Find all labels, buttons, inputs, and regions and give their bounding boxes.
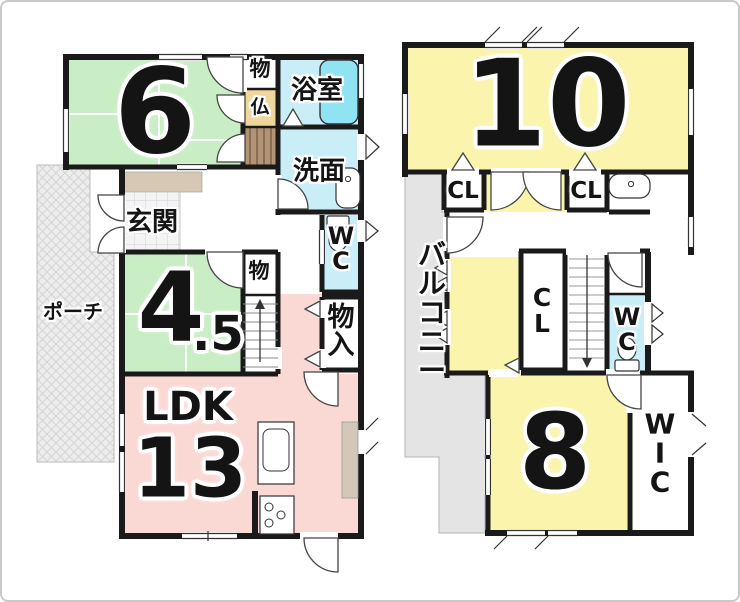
butsudan-label: 仏: [250, 98, 269, 118]
ldk-size-label: 13: [133, 426, 247, 511]
bay-window-icon: [652, 304, 663, 322]
door-arc: [608, 253, 642, 287]
wc2-label: W C: [614, 305, 640, 355]
room10-label: 10: [464, 44, 631, 169]
corridor2-area: [450, 257, 519, 375]
porch-label: ポーチ: [43, 302, 103, 323]
closet-left-label: CL: [447, 180, 479, 204]
closet-upper-label: 物: [250, 59, 271, 81]
storage-label: 物 入: [328, 304, 355, 360]
entrance-door-arc: [98, 227, 124, 253]
wc1-label: W C: [328, 224, 354, 274]
entrance-door-arc: [98, 195, 124, 221]
bay-window-icon: [366, 221, 378, 241]
floorplan-canvas: 6 物 仏 浴室 洗面 玄関 ポーチ W C 4 .5 物 物 入 LDK 13…: [0, 0, 740, 602]
wic-label: W I C: [645, 409, 676, 496]
balcony-door-arc: [447, 217, 483, 253]
room8-label: 8: [519, 398, 591, 506]
washroom-label: 洗面: [293, 158, 345, 185]
exterior-door-arc: [304, 538, 338, 572]
bay-window-icon: [366, 135, 379, 159]
counter-icon: [342, 422, 358, 498]
entrance-label: 玄関: [126, 209, 178, 236]
stairs-lower-area: [243, 128, 278, 167]
balcony-label: バ ル コ ニ ー: [418, 240, 446, 386]
staircase-down-icon: [569, 255, 605, 368]
closet-right-label: CL: [570, 180, 602, 204]
room45-sub-label: .5: [192, 310, 244, 360]
room6-label: 6: [114, 51, 196, 174]
closet-mid-label: 物: [249, 261, 270, 283]
closet-mid2-label: C L: [533, 285, 551, 337]
staircase-up-icon: [243, 299, 278, 367]
bathroom-label: 浴室: [291, 77, 343, 104]
bay-window-icon: [652, 325, 663, 343]
